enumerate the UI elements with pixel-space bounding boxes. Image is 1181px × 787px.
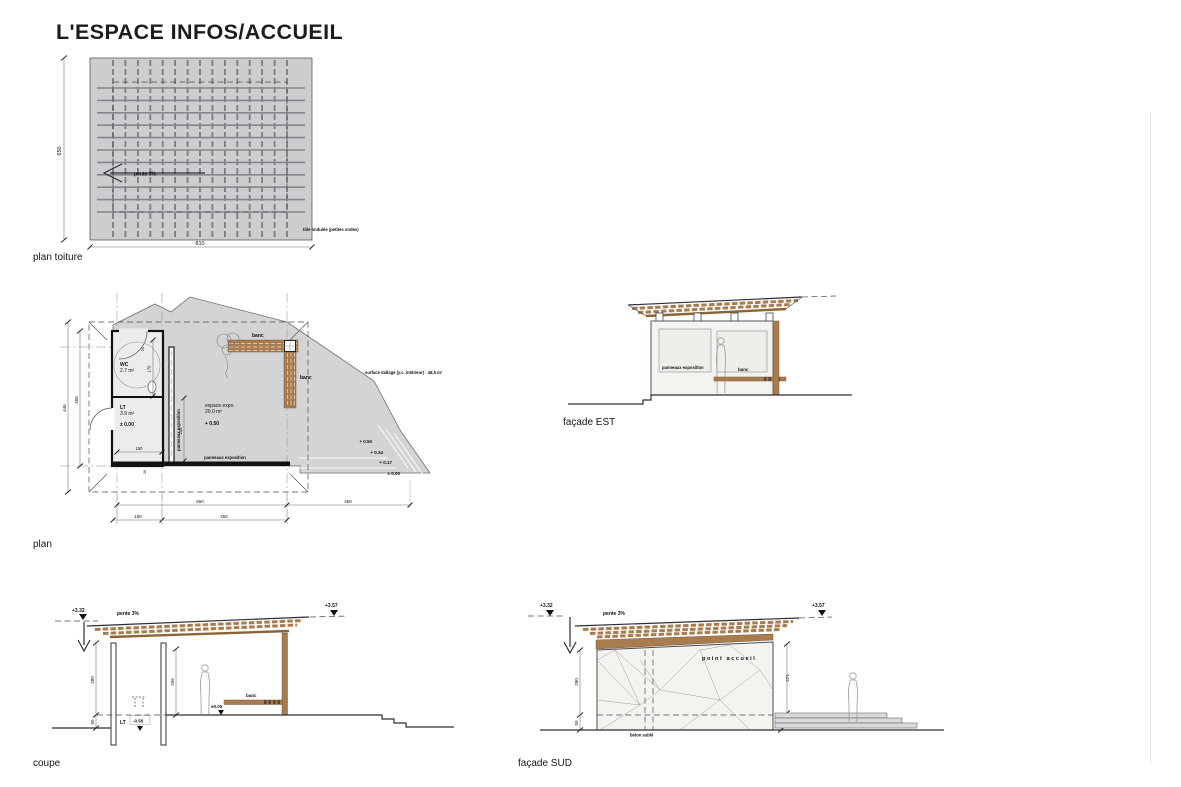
panneaux-label-est: panneaux exposition [662,365,704,370]
roof-coupe [87,616,348,637]
svg-text:LT: LT [120,720,126,726]
svg-text:-0.50: -0.50 [133,719,144,724]
facade-sud-drawing: +3.32 pente 3% +3.57 point accueil [505,595,950,780]
facade-est-label: façade EST [563,417,615,428]
svg-text:280: 280 [574,678,579,686]
svg-text:280: 280 [90,676,95,684]
floor-plan-drawing: banc banc panneaux exposition panneaux e… [40,285,470,550]
coupe-label: coupe [33,758,60,769]
svg-text:± 0.00: ± 0.00 [120,422,134,428]
material-note-sud: béton sablé [630,733,654,738]
slope-label-coupe: pente 3% [117,611,140,617]
svg-text:2.7 m²: 2.7 m² [120,368,135,374]
svg-text:20.0 m²: 20.0 m² [205,409,222,415]
page-title: L'ESPACE INFOS/ACCUEIL [56,20,343,45]
person-silhouette-coupe [201,665,210,714]
svg-text:+3.32: +3.32 [72,608,85,614]
svg-text:+ 0.50: + 0.50 [359,439,372,444]
slope-label: pente 3% [134,172,157,178]
drawing-sheet: L'ESPACE INFOS/ACCUEIL pente 3% [0,0,1181,787]
svg-text:+ 0.17: + 0.17 [379,460,392,465]
roof-material-note: tôle ondulée (petites ondes) [303,227,359,232]
left-dims: 446 466 [62,320,83,495]
svg-text:650: 650 [196,499,204,504]
svg-text:20: 20 [143,470,147,474]
svg-text:650: 650 [57,146,63,155]
bench-label-est: banc [738,367,749,372]
svg-text:3.9 m²: 3.9 m² [120,411,135,417]
svg-text:+3.57: +3.57 [812,603,825,609]
bench-label-top: banc [252,333,264,339]
svg-text:170: 170 [147,365,152,373]
level-zero-marker: ±0.00 [211,704,224,715]
level-marker-right: +3.57 [325,603,338,616]
roof-sud [575,617,832,637]
level-marker-right-sud: +3.57 [812,603,826,616]
svg-text:446: 446 [62,404,67,412]
surface-note: surface dallage (y.c. intérieur) : 48,5 … [365,370,443,375]
svg-text:466: 466 [74,396,79,404]
svg-text:160: 160 [136,446,144,451]
sign-point-accueil: point accueil [702,656,756,662]
svg-text:+3.57: +3.57 [325,603,338,609]
coupe-drawing: +3.32 pente 3% +3.57 LT [25,595,455,775]
svg-text:banc: banc [246,693,257,698]
svg-text:20: 20 [141,347,145,351]
svg-text:±0.00: ±0.00 [211,704,223,709]
floor-plan-label: plan [33,539,52,550]
level-marker-left-sud: +3.32 [528,603,566,616]
bench-coupe: banc [224,693,282,705]
svg-text:+3.32: +3.32 [540,603,553,609]
page-edge-line [1150,113,1151,763]
dim-650: 650 [57,56,67,243]
roof-plan-drawing: pente 3% 650 810 tôle ondulée (petites o… [50,45,410,275]
svg-text:± 0.00: ± 0.00 [388,471,401,476]
panel-wall-vertical [169,347,174,463]
facade-sud-label: façade SUD [518,758,572,769]
level-marker-left: +3.32 [55,608,98,621]
lt-shaft: LT -0.50 [111,643,166,745]
down-arrow-sud [564,617,576,653]
svg-text:180: 180 [134,514,142,519]
post-est [773,321,779,395]
svg-text:50: 50 [90,719,95,725]
dims-sud-left: 280 50 [574,648,583,733]
svg-text:450: 450 [220,514,228,519]
panel-wall-south [112,462,290,467]
panel-label-south: panneaux exposition [204,455,246,460]
ground-est [568,395,852,404]
slope-label-sud: pente 3% [603,611,626,617]
svg-text:+ 0.50: + 0.50 [205,421,219,427]
svg-text:256: 256 [170,678,175,686]
svg-text:+ 0.34: + 0.34 [370,450,383,455]
svg-text:271: 271 [785,674,790,682]
bench-label-right: banc [300,375,312,381]
facade-est-drawing: panneaux exposition banc [555,285,905,435]
svg-text:810: 810 [195,241,204,247]
svg-text:246: 246 [178,427,183,435]
dim-810: 810 [88,241,315,250]
roof-plan-label: plan toiture [33,252,82,263]
svg-text:450: 450 [344,499,352,504]
steps-sud [775,713,917,728]
svg-text:50: 50 [574,720,579,726]
bottom-dims: 650 450 180 450 [111,480,413,523]
post-coupe [282,633,288,715]
